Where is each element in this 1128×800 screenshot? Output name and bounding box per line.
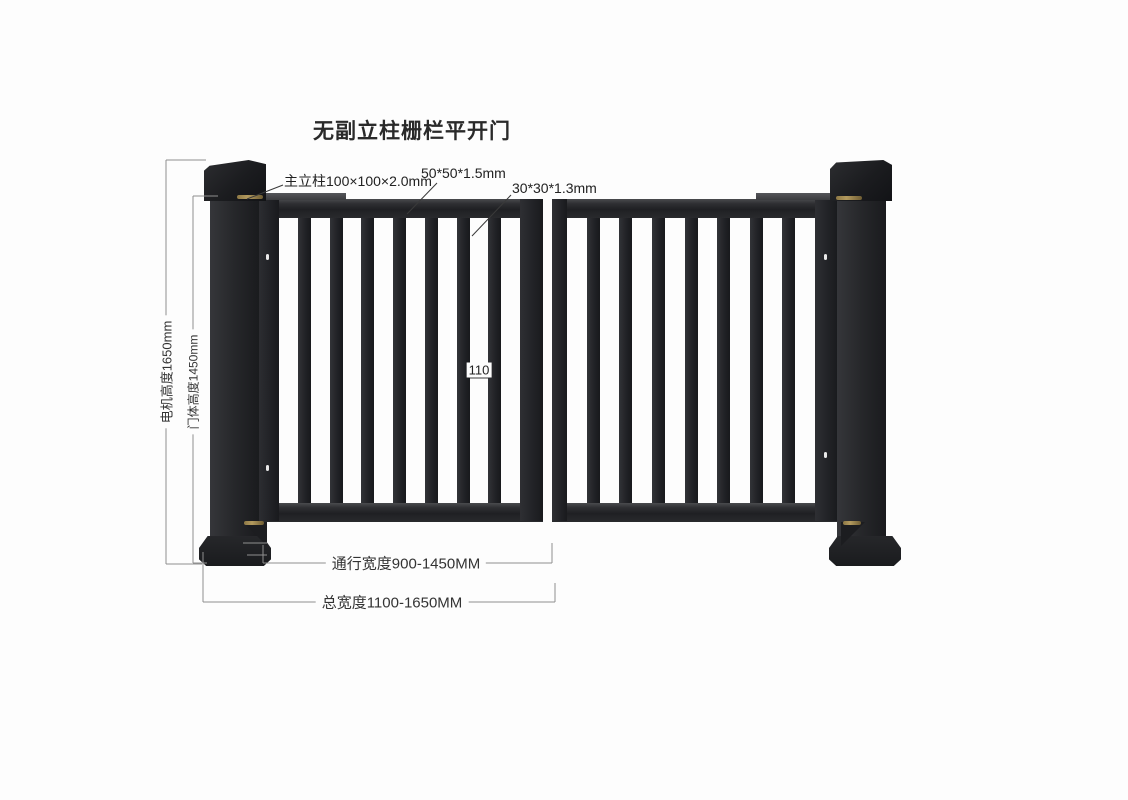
callout-picket-tube: 30*30*1.3mm (512, 180, 597, 196)
dimension-passage-width: 通行宽度900-1450MM (326, 553, 486, 574)
dimension-door-height: 门体高度1450mm (185, 330, 202, 435)
callout-picket-gap: 110 (467, 363, 492, 378)
dimension-motor-height: 电机高度1650mm (157, 316, 176, 429)
diagram-canvas: 无副立柱栅栏平开门 (0, 0, 1128, 800)
dimension-total-width: 总宽度1100-1650MM (316, 592, 469, 613)
callout-main-post: 主立柱100×100×2.0mm (284, 171, 432, 191)
diagram-title: 无副立柱栅栏平开门 (313, 115, 511, 145)
leader-main-post (247, 185, 283, 199)
callout-frame-tube: 50*50*1.5mm (421, 165, 506, 181)
leader-picket-tube (472, 195, 511, 236)
